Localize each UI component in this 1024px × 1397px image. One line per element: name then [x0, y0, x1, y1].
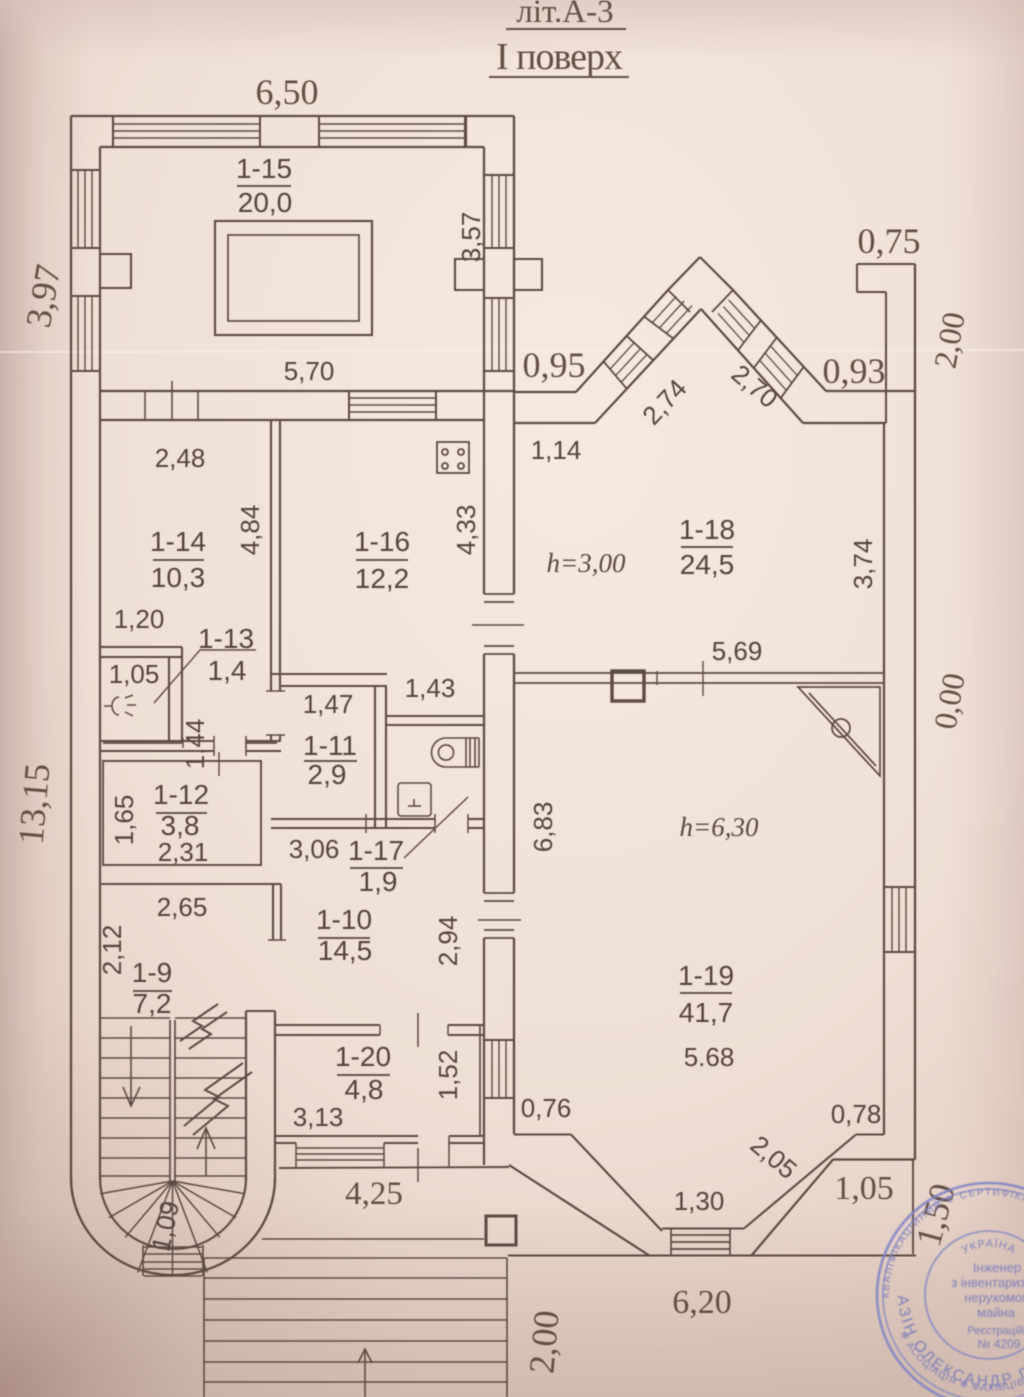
svg-text:1-15: 1-15	[236, 153, 292, 184]
svg-text:0,95: 0,95	[523, 345, 586, 385]
svg-text:3,74: 3,74	[848, 539, 878, 590]
svg-text:1,30: 1,30	[674, 1186, 725, 1216]
svg-text:І поверх: І поверх	[496, 36, 623, 78]
svg-text:0,76: 0,76	[521, 1093, 572, 1123]
svg-text:1-18: 1-18	[679, 514, 735, 545]
svg-text:1-12: 1-12	[153, 779, 209, 810]
svg-text:41,7: 41,7	[679, 997, 734, 1028]
svg-text:h=3,00: h=3,00	[547, 548, 626, 578]
svg-text:14,5: 14,5	[318, 935, 373, 966]
svg-text:5,69: 5,69	[712, 636, 763, 666]
svg-text:1-10: 1-10	[316, 904, 372, 935]
svg-text:4,84: 4,84	[235, 505, 265, 556]
svg-text:5.68: 5.68	[684, 1042, 735, 1072]
svg-text:h=6,30: h=6,30	[680, 812, 759, 842]
svg-text:4,25: 4,25	[345, 1176, 403, 1212]
svg-text:1-14: 1-14	[150, 526, 206, 557]
svg-text:2,65: 2,65	[157, 892, 208, 922]
svg-text:0,75: 0,75	[858, 221, 921, 261]
svg-text:6,20: 6,20	[672, 1284, 732, 1321]
svg-text:2,00: 2,00	[521, 1309, 566, 1375]
svg-text:24,5: 24,5	[680, 549, 735, 580]
svg-text:10,3: 10,3	[151, 562, 206, 593]
svg-text:0,78: 0,78	[831, 1099, 882, 1129]
svg-text:1-13: 1-13	[198, 623, 254, 654]
svg-text:1,14: 1,14	[531, 435, 582, 465]
svg-text:1,05: 1,05	[109, 659, 160, 689]
svg-text:1-11: 1-11	[303, 730, 357, 761]
svg-text:4,8: 4,8	[345, 1074, 384, 1105]
svg-text:20,0: 20,0	[238, 187, 293, 218]
svg-text:1-20: 1-20	[335, 1041, 391, 1072]
svg-text:нерухомого: нерухомого	[964, 1290, 1024, 1305]
svg-text:3,13: 3,13	[293, 1102, 344, 1132]
svg-text:1-19: 1-19	[678, 960, 734, 991]
svg-text:1-9: 1-9	[132, 957, 172, 988]
svg-text:2,48: 2,48	[155, 443, 206, 473]
svg-text:Інженер: Інженер	[973, 1260, 1021, 1275]
svg-text:5,70: 5,70	[284, 356, 335, 386]
svg-text:4,33: 4,33	[451, 505, 481, 556]
svg-text:6,83: 6,83	[528, 802, 558, 853]
svg-text:2,31: 2,31	[158, 837, 209, 867]
svg-text:2,9: 2,9	[308, 759, 347, 790]
svg-text:0,93: 0,93	[823, 351, 886, 391]
svg-text:3,06: 3,06	[289, 834, 340, 864]
svg-text:1,9: 1,9	[359, 866, 398, 897]
svg-text:2,94: 2,94	[433, 916, 463, 967]
svg-text:1,43: 1,43	[405, 673, 456, 703]
svg-text:Реєстраційн.: Реєстраційн.	[967, 1325, 1024, 1337]
svg-text:1,05: 1,05	[834, 1170, 894, 1207]
svg-text:майна: майна	[977, 1305, 1016, 1320]
svg-text:6,50: 6,50	[256, 72, 319, 112]
svg-text:1,4: 1,4	[208, 655, 247, 686]
svg-text:№ 4209: № 4209	[978, 1337, 1021, 1351]
svg-text:2,12: 2,12	[97, 925, 127, 976]
svg-text:13,15: 13,15	[11, 762, 58, 846]
svg-text:з інвентаризації: з інвентаризації	[951, 1275, 1024, 1290]
svg-text:1-17: 1-17	[348, 835, 404, 866]
svg-text:1,20: 1,20	[114, 604, 165, 634]
svg-text:1,47: 1,47	[303, 689, 354, 719]
svg-text:7,2: 7,2	[133, 988, 172, 1019]
svg-text:3,57: 3,57	[456, 212, 486, 263]
svg-text:1,52: 1,52	[433, 1050, 463, 1101]
svg-text:1,44: 1,44	[180, 719, 210, 770]
svg-text:літ.А-3: літ.А-3	[516, 0, 613, 30]
svg-text:1,65: 1,65	[109, 795, 139, 846]
svg-text:12,2: 12,2	[355, 563, 410, 594]
svg-text:1-16: 1-16	[354, 526, 410, 557]
